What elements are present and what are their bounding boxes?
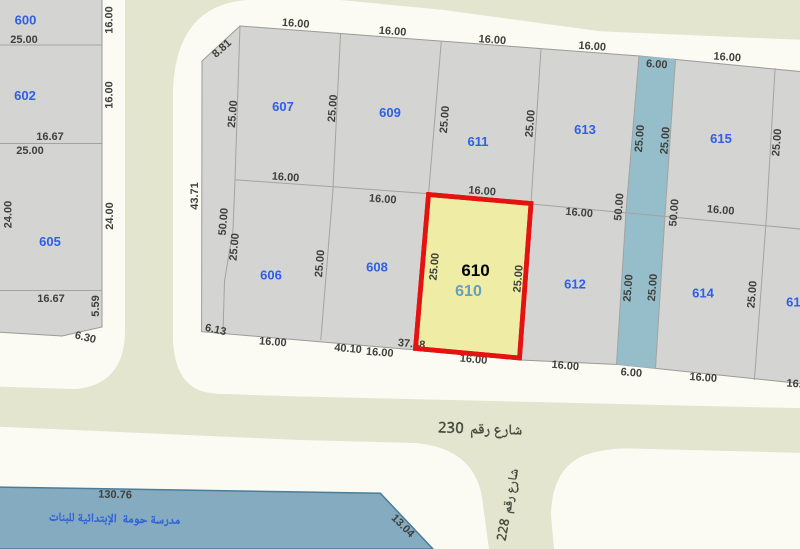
svg-text:50.00: 50.00	[612, 193, 626, 221]
svg-text:16.00: 16.00	[282, 17, 310, 31]
svg-text:16.67: 16.67	[37, 293, 65, 305]
svg-text:6.00: 6.00	[646, 58, 668, 71]
svg-text:43.71: 43.71	[189, 182, 201, 210]
svg-text:16.00: 16.00	[689, 371, 717, 385]
svg-text:25.00: 25.00	[438, 105, 452, 133]
svg-text:609: 609	[379, 105, 401, 120]
svg-text:16.00: 16.00	[378, 25, 406, 39]
svg-text:614: 614	[692, 286, 714, 301]
svg-text:16.00: 16.00	[706, 203, 734, 217]
svg-text:130.76: 130.76	[98, 489, 132, 502]
svg-text:16.00: 16.00	[578, 40, 606, 54]
svg-text:25.00: 25.00	[633, 124, 647, 152]
svg-text:16.00: 16.00	[259, 335, 287, 349]
svg-text:616: 616	[786, 295, 800, 310]
svg-text:16.00: 16.00	[104, 81, 116, 109]
svg-text:25.00: 25.00	[646, 273, 660, 301]
svg-text:608: 608	[366, 260, 388, 275]
svg-text:605: 605	[39, 234, 61, 249]
svg-text:16.00: 16.00	[786, 378, 800, 392]
svg-text:16.67: 16.67	[36, 131, 64, 143]
svg-text:6.00: 6.00	[620, 366, 642, 380]
svg-text:612: 612	[564, 277, 586, 292]
svg-text:24.00: 24.00	[3, 201, 15, 229]
svg-text:25.00: 25.00	[10, 34, 38, 46]
svg-text:25.00: 25.00	[658, 126, 672, 154]
svg-text:25.00: 25.00	[428, 252, 442, 280]
svg-text:16.00: 16.00	[104, 6, 116, 34]
svg-text:40.10: 40.10	[334, 342, 362, 356]
svg-text:16.00: 16.00	[366, 346, 394, 360]
svg-text:16.00: 16.00	[713, 51, 741, 65]
svg-text:16.00: 16.00	[551, 359, 579, 373]
svg-text:50.00: 50.00	[217, 208, 231, 236]
svg-text:24.00: 24.00	[104, 202, 116, 230]
svg-text:25.00: 25.00	[621, 274, 635, 302]
svg-text:25.00: 25.00	[770, 128, 784, 156]
svg-text:610: 610	[461, 261, 489, 280]
svg-text:610: 610	[455, 283, 482, 300]
svg-text:50.00: 50.00	[667, 199, 681, 227]
svg-text:16.00: 16.00	[369, 193, 397, 207]
svg-text:615: 615	[710, 131, 732, 146]
svg-text:613: 613	[574, 122, 596, 137]
svg-text:25.00: 25.00	[523, 109, 537, 137]
svg-text:607: 607	[272, 99, 294, 114]
svg-text:600: 600	[15, 13, 37, 28]
svg-text:611: 611	[468, 134, 489, 149]
svg-text:16.00: 16.00	[565, 206, 593, 220]
svg-text:606: 606	[260, 268, 282, 283]
svg-text:5.59: 5.59	[90, 295, 102, 316]
svg-text:25.00: 25.00	[228, 233, 242, 261]
svg-text:25.00: 25.00	[226, 100, 240, 128]
svg-text:602: 602	[14, 88, 36, 103]
svg-text:16.00: 16.00	[478, 33, 506, 47]
svg-text:25.00: 25.00	[313, 249, 327, 277]
svg-text:25.00: 25.00	[745, 280, 759, 308]
svg-text:25.00: 25.00	[16, 145, 44, 157]
svg-text:16.00: 16.00	[271, 171, 299, 185]
svg-text:25.00: 25.00	[326, 94, 340, 122]
